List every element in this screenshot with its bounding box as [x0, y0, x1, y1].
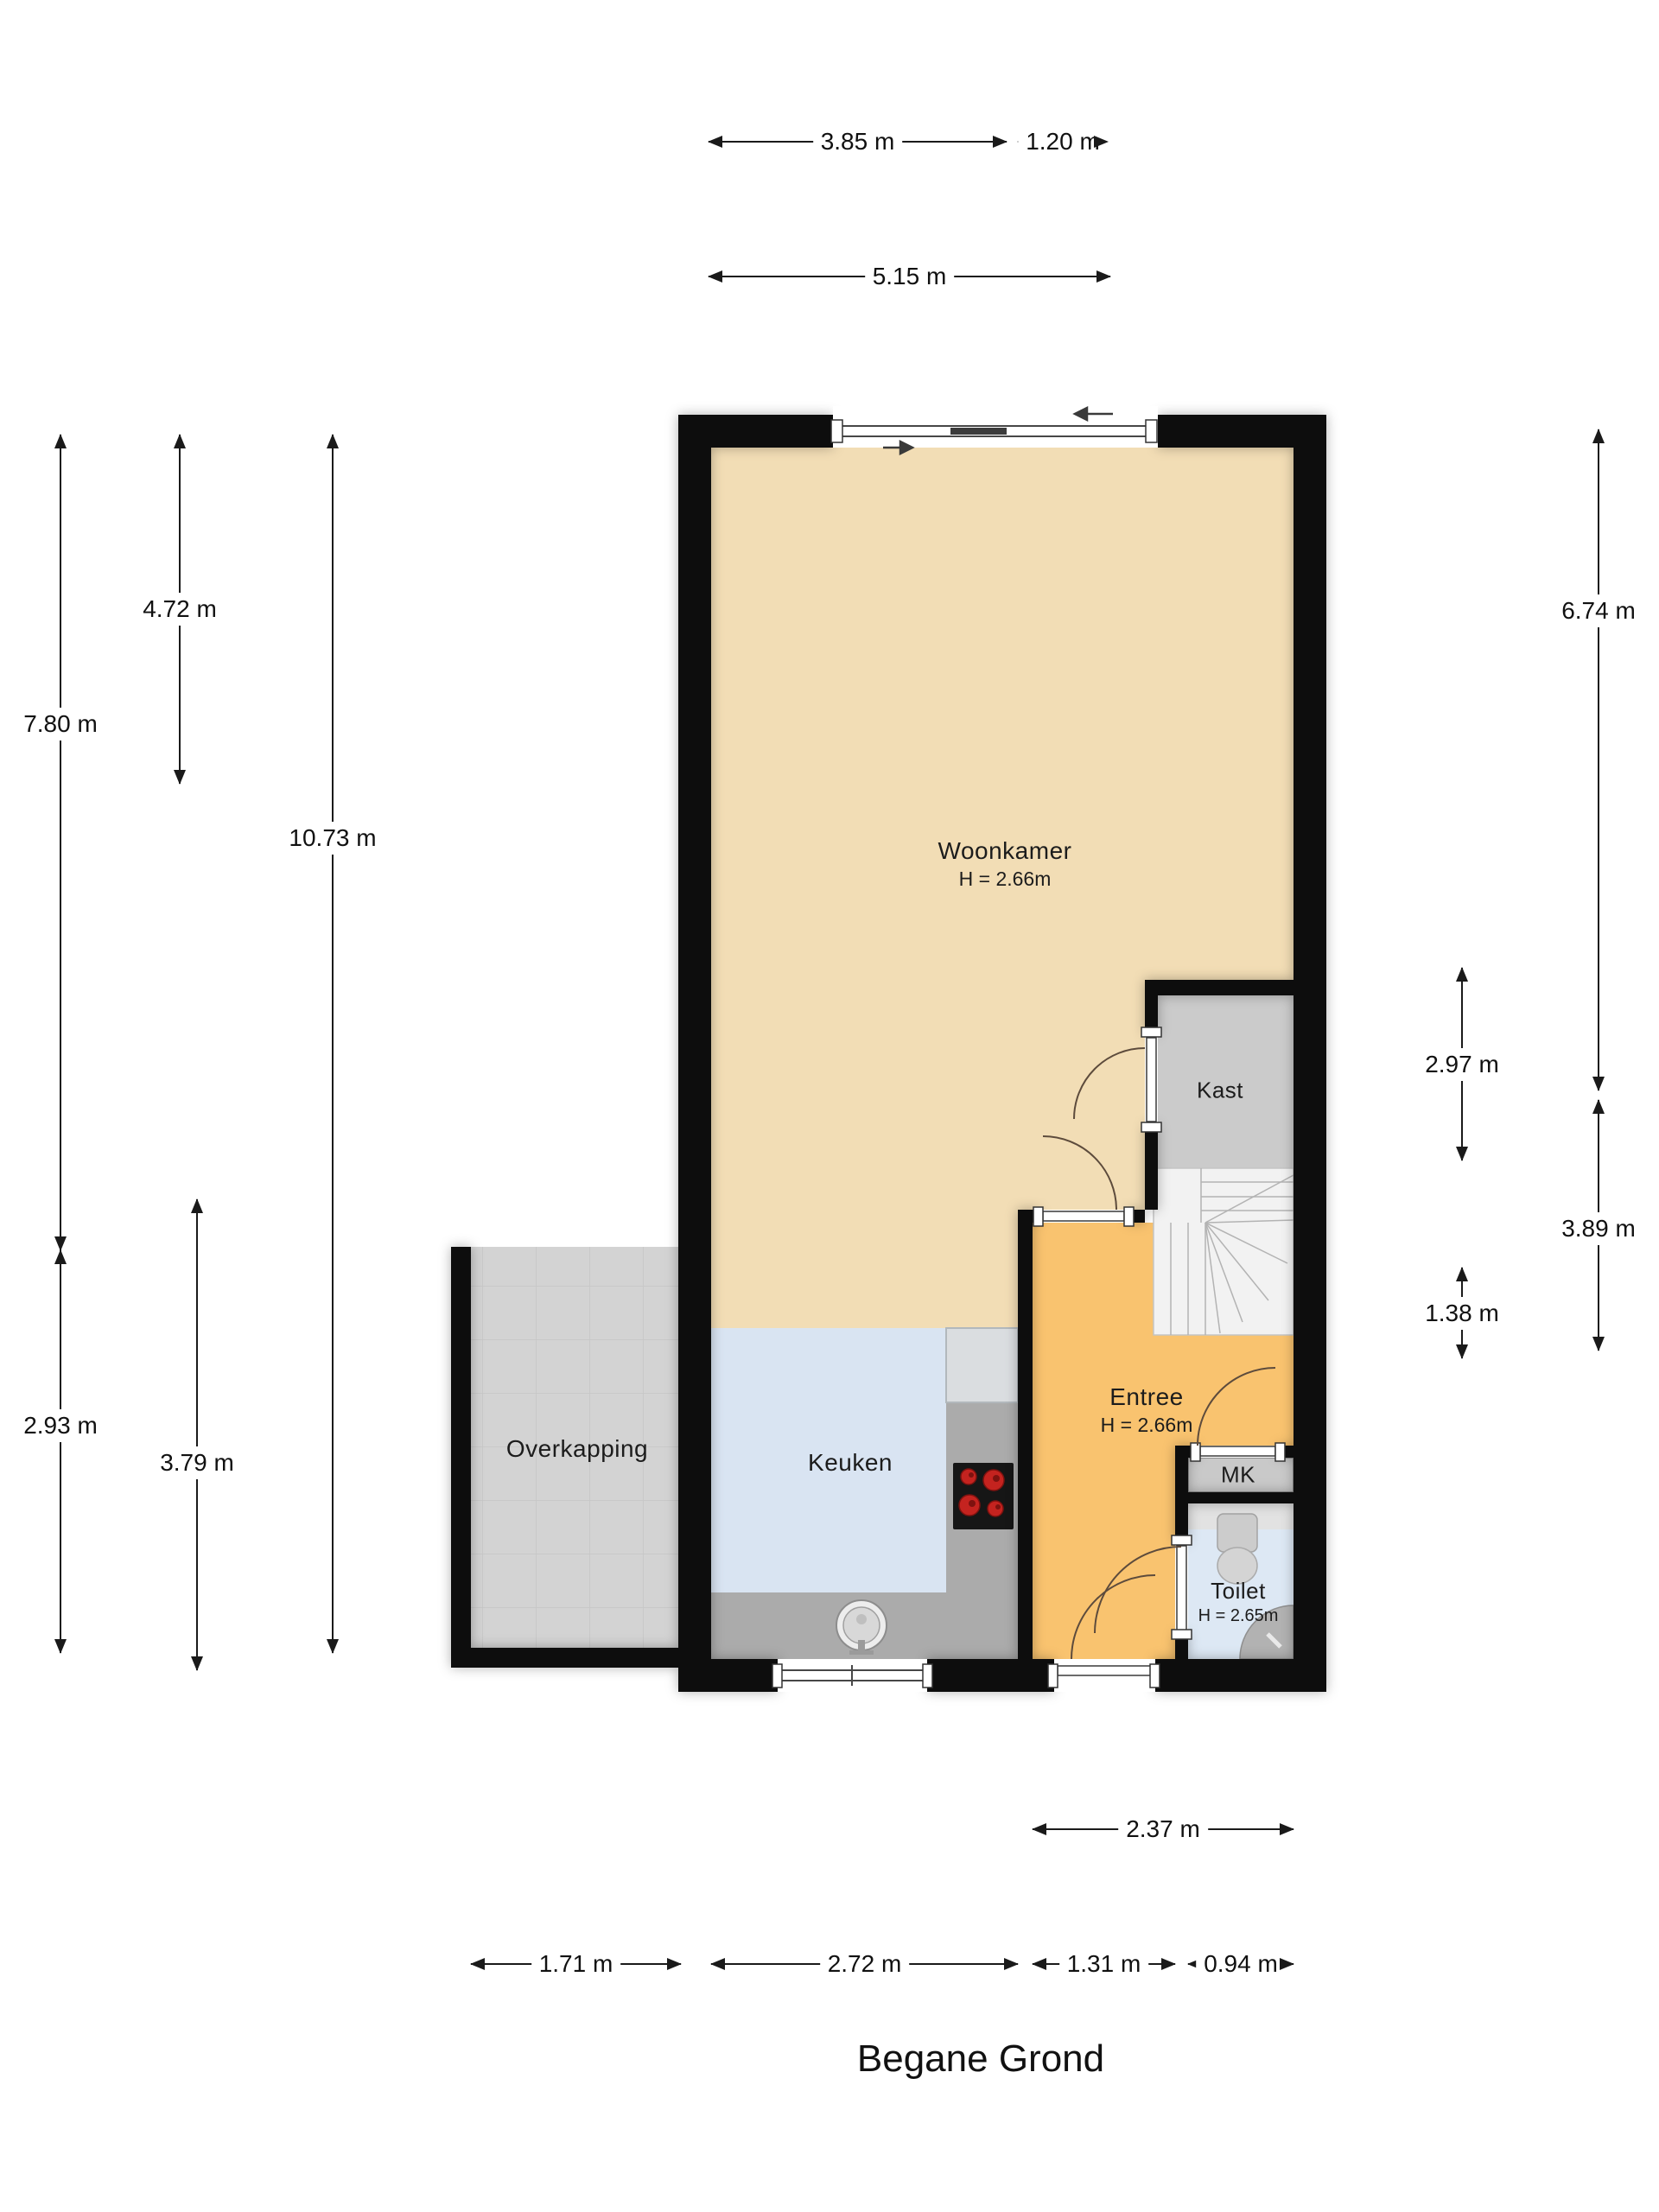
overkapping-left-wall	[451, 1247, 471, 1668]
room-name: MK	[1221, 1462, 1255, 1489]
dimension-left-overkapping: 3.79 m	[196, 1199, 198, 1670]
dimension-bottom-toilet: 0.94 m	[1188, 1963, 1294, 1965]
room-label-overkapping: Overkapping	[506, 1435, 648, 1463]
dimension-top-width-right: 1.20 m	[1018, 141, 1108, 143]
kast-left-wall-upper	[1145, 980, 1158, 1034]
left-wall	[678, 415, 711, 1692]
dimension-label: 1.38 m	[1417, 1297, 1507, 1330]
dimension-label: 3.89 m	[1554, 1212, 1643, 1245]
floorplan-page: Woonkamer H = 2.66m Keuken Overkapping E…	[0, 0, 1659, 2212]
dimension-right-kast-stairs: 2.97 m	[1461, 968, 1463, 1160]
dimension-bottom-entree-total: 2.37 m	[1033, 1828, 1294, 1830]
room-name: Toilet	[1198, 1578, 1279, 1605]
dimension-left-height-upper: 7.80 m	[60, 435, 61, 1250]
room-label-mk: MK	[1221, 1462, 1255, 1489]
dimension-label: 3.79 m	[152, 1446, 242, 1479]
room-label-woonkamer: Woonkamer H = 2.66m	[938, 837, 1072, 891]
dimension-right-height-upper: 6.74 m	[1598, 429, 1599, 1090]
stairs	[1154, 1168, 1294, 1335]
stove-icon	[953, 1463, 1014, 1529]
dimension-label: 1.31 m	[1059, 1948, 1149, 1980]
room-label-kast: Kast	[1197, 1077, 1243, 1104]
dimension-left-height-total: 10.73 m	[332, 435, 334, 1653]
dimension-right-height-lower: 3.89 m	[1598, 1100, 1599, 1351]
room-ceiling-height: H = 2.66m	[938, 868, 1072, 891]
dimension-label: 2.93 m	[16, 1409, 105, 1442]
dimension-label: 3.85 m	[813, 125, 903, 158]
bottom-wall-left	[678, 1659, 778, 1692]
room-name: Woonkamer	[938, 837, 1072, 865]
dimension-label: 5.15 m	[865, 260, 955, 293]
dimension-right-toilet: 1.38 m	[1461, 1268, 1463, 1358]
room-ceiling-height: H = 2.65m	[1198, 1606, 1279, 1626]
bottom-wall-mid	[927, 1659, 1054, 1692]
dimension-left-height-lower: 2.93 m	[60, 1250, 61, 1653]
kast-left-wall-lower	[1145, 1125, 1158, 1210]
room-label-keuken: Keuken	[808, 1449, 893, 1477]
dimension-label: 0.94 m	[1196, 1948, 1286, 1980]
floorplan-canvas	[0, 0, 1659, 2212]
dimension-label: 7.80 m	[16, 708, 105, 741]
sliding-door	[831, 406, 1158, 454]
mk-bottom-wall	[1175, 1492, 1294, 1503]
dimension-bottom-keuken: 2.72 m	[711, 1963, 1018, 1965]
kast-top-wall	[1145, 980, 1294, 995]
entree-left-wall	[1018, 1210, 1033, 1659]
room-label-toilet: Toilet H = 2.65m	[1198, 1578, 1279, 1626]
dimension-label: 2.97 m	[1417, 1048, 1507, 1081]
room-ceiling-height: H = 2.66m	[1101, 1414, 1193, 1437]
right-wall	[1294, 415, 1326, 1692]
keuken-window	[772, 1659, 932, 1692]
dimension-label: 2.37 m	[1118, 1813, 1208, 1846]
dimension-label: 2.72 m	[820, 1948, 910, 1980]
overkapping-bottom-wall	[451, 1648, 681, 1668]
room-label-entree: Entree H = 2.66m	[1101, 1383, 1193, 1437]
dimension-bottom-overkapping: 1.71 m	[471, 1963, 681, 1965]
top-wall-left	[678, 415, 833, 448]
dimension-label: 6.74 m	[1554, 594, 1643, 627]
kitchen-cabinet	[946, 1328, 1018, 1402]
dimension-bottom-entree: 1.31 m	[1033, 1963, 1175, 1965]
dimension-label: 4.72 m	[135, 593, 225, 626]
bottom-wall-right	[1155, 1659, 1326, 1692]
dimension-label: 1.20 m	[1018, 125, 1108, 158]
room-name: Entree	[1101, 1383, 1193, 1411]
room-name: Overkapping	[506, 1435, 648, 1463]
floor-title: Begane Grond	[857, 2037, 1104, 2081]
dimension-label: 1.71 m	[531, 1948, 621, 1980]
room-name: Keuken	[808, 1449, 893, 1477]
room-name: Kast	[1197, 1077, 1243, 1104]
toilet-icon	[1217, 1514, 1257, 1584]
dimension-left-height-inner: 4.72 m	[179, 435, 181, 784]
dimension-label: 10.73 m	[281, 822, 384, 855]
dimension-top-width-total: 5.15 m	[709, 276, 1110, 277]
dimension-top-width-left: 3.85 m	[709, 141, 1007, 143]
top-wall-right	[1158, 415, 1326, 448]
